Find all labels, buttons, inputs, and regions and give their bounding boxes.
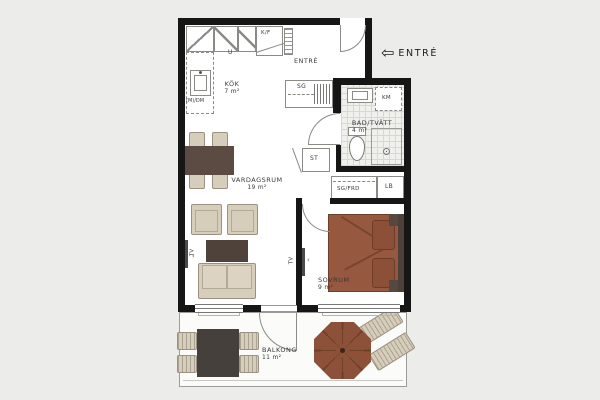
- tv-outlet-label-bedroom: TV: [288, 257, 295, 265]
- label-linen-cabinet: LB: [385, 183, 393, 191]
- label-fridge-freezer: K/F: [261, 30, 271, 37]
- oven-cabinet: [238, 26, 256, 52]
- wall-pier: [400, 305, 411, 312]
- wall-bedroom-north: [330, 198, 404, 204]
- wall-pier: [243, 305, 261, 312]
- wall-right: [404, 78, 411, 312]
- wall-entry-right: [365, 18, 372, 84]
- sliding-wardrobe-doors: [333, 181, 375, 182]
- kitchen-faucet-dot: [199, 71, 202, 74]
- label-sliding-wardrobe: SG/FRD: [337, 186, 360, 193]
- dining-table: [184, 146, 234, 175]
- room-label-kitchen: KÖK 7 m²: [212, 80, 252, 96]
- kitchen-cabinet: [214, 26, 238, 52]
- window-sill: [322, 313, 396, 316]
- entry-sign: ⇦ ENTRÉ: [381, 45, 438, 61]
- label-hall-wardrobe: SG: [297, 83, 306, 91]
- bathroom-door-leaf: [308, 144, 340, 145]
- wall-bathroom-top: [333, 78, 411, 85]
- entry-shoe-rack: [284, 28, 293, 55]
- wall-pier: [297, 305, 318, 312]
- room-label-entry-hall: ENTRÉ: [284, 57, 328, 65]
- label-cleaning-closet: ST: [310, 155, 318, 163]
- label-micro-dishwasher: (M)/DM: [186, 98, 204, 104]
- hall-wardrobe-rod: [288, 94, 314, 95]
- sofa-cushion: [202, 265, 227, 289]
- wall-bathroom-left-upper: [333, 78, 341, 113]
- room-label-living-room: VARDAGSRUM 19 m²: [226, 176, 288, 192]
- balcony-chair: [177, 355, 197, 373]
- wall-bathroom-bottom: [336, 166, 404, 172]
- armchair-seat: [231, 210, 254, 232]
- sofa-cushion: [227, 265, 252, 289]
- wall-left: [178, 18, 185, 312]
- parasol-pole: [340, 348, 345, 353]
- window-sill: [198, 313, 240, 316]
- entry-sign-label: ENTRÉ: [398, 48, 438, 59]
- room-label-balcony: BALKONG 11 m²: [244, 346, 304, 362]
- armchair-seat: [195, 210, 218, 232]
- balcony-railing-line: [183, 380, 403, 381]
- balcony-table: [197, 329, 239, 377]
- balcony-door-threshold: [261, 305, 297, 312]
- hall-wardrobe-clothes: [314, 84, 330, 104]
- floor-drain-dot: [386, 151, 387, 152]
- label-oven: U: [228, 49, 233, 57]
- room-label-bedroom: SOVRUM 9 m²: [318, 276, 349, 292]
- entry-arrow-icon: ⇦: [381, 45, 394, 61]
- window-living-room: [195, 304, 243, 313]
- balcony-chair: [177, 332, 197, 350]
- kitchen-corner-cabinet: [186, 26, 214, 52]
- label-washing-machine: KM: [382, 95, 391, 102]
- wall-top: [178, 18, 340, 25]
- coffee-table: [206, 240, 248, 262]
- tv-panel-bedroom: [302, 248, 305, 276]
- kitchen-sink-basin: [194, 75, 207, 91]
- antenna-icon: ‹: [192, 252, 195, 261]
- floor-plan: TV ‹ TV ‹ KÖK 7 m² ENTRÉ BAD/TVÄTT 4 m² …: [0, 0, 600, 400]
- entry-door-leaf: [340, 25, 341, 52]
- bathroom-sink-basin: [352, 91, 368, 100]
- wall-pier: [178, 305, 195, 312]
- room-label-bathroom: BAD/TVÄTT 4 m²: [338, 119, 406, 135]
- antenna-icon: ‹: [307, 256, 310, 265]
- tv-panel-living: [185, 240, 188, 268]
- window-bedroom: [318, 304, 400, 313]
